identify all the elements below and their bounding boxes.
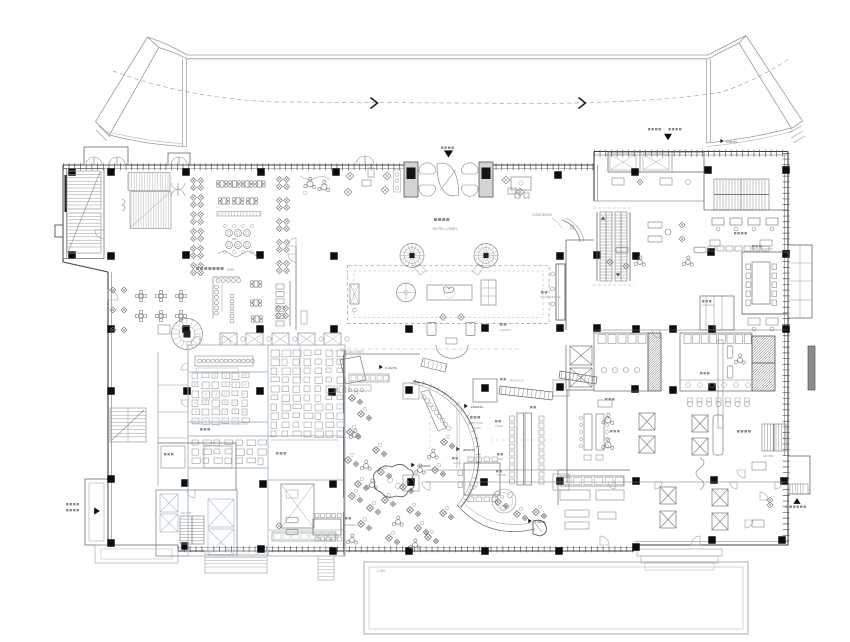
svg-text:0.5MYFL: 0.5MYFL (726, 140, 738, 144)
svg-text:12=17R2: 12=17R2 (763, 454, 774, 458)
svg-text:-305AFFL: -305AFFL (462, 448, 476, 452)
svg-text:WINE RACK: WINE RACK (509, 379, 524, 383)
svg-text:VOID OVER: VOID OVER (345, 350, 364, 354)
svg-text:CONCIERGE: CONCIERGE (532, 213, 553, 217)
svg-text:SHOP: SHOP (473, 426, 481, 430)
svg-text:W8U: W8U (232, 238, 238, 241)
svg-text:0. 0AYFL: 0. 0AYFL (385, 366, 398, 370)
svg-text:12=17R2: 12=17R2 (181, 512, 192, 515)
svg-text:LUGGAGE: LUGGAGE (702, 304, 715, 307)
svg-text:SCREEN: SCREEN (345, 523, 356, 527)
svg-text:COFFE: COFFE (495, 425, 504, 428)
svg-text:GLASS: GLASS (453, 462, 462, 465)
svg-text:-1.450: -1.450 (376, 569, 385, 573)
svg-text:STAGE: STAGE (497, 473, 506, 477)
svg-text:CARPET: CARPET (499, 328, 511, 332)
svg-text:(146): (146) (227, 268, 234, 272)
svg-text:FRONT OFFICE: FRONT OFFICE (540, 295, 561, 299)
svg-text:MEETING ROOM: MEETING ROOM (752, 247, 773, 251)
svg-text:HOTEL LOBBY: HOTEL LOBBY (433, 227, 458, 231)
svg-text:BAR: BAR (498, 458, 503, 461)
svg-text:BOUTIQUE: BOUTIQUE (468, 421, 483, 425)
svg-text:-150AFFL: -150AFFL (470, 405, 484, 409)
